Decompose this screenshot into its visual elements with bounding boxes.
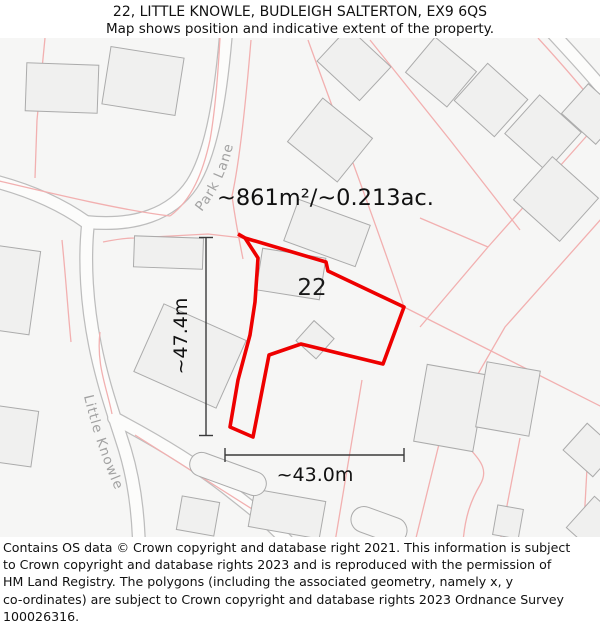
building xyxy=(133,236,203,269)
property-map: ~861m²/~0.213ac. 22 ~47.4m ~43.0m Park L… xyxy=(0,0,600,625)
building xyxy=(493,505,524,539)
footer-line: Contains OS data © Crown copyright and d… xyxy=(3,539,597,556)
map-description-subtitle: Map shows position and indicative extent… xyxy=(0,21,600,38)
property-address-title: 22, LITTLE KNOWLE, BUDLEIGH SALTERTON, E… xyxy=(0,0,600,21)
area-label: ~861m²/~0.213ac. xyxy=(217,185,434,211)
footer-line: HM Land Registry. The polygons (includin… xyxy=(3,573,597,590)
width-dimension-label: ~43.0m xyxy=(277,464,354,486)
building xyxy=(414,364,487,451)
building xyxy=(176,496,219,536)
footer-line: 100026316. xyxy=(3,608,597,625)
property-number-label: 22 xyxy=(297,275,326,301)
building xyxy=(102,47,184,116)
height-dimension-label: ~47.4m xyxy=(170,298,192,375)
footer-line: to Crown copyright and database rights 2… xyxy=(3,556,597,573)
footer-line: co-ordinates) are subject to Crown copyr… xyxy=(3,591,597,608)
building xyxy=(25,63,99,113)
copyright-footer: Contains OS data © Crown copyright and d… xyxy=(0,539,600,625)
report-header: 22, LITTLE KNOWLE, BUDLEIGH SALTERTON, E… xyxy=(0,0,600,38)
building xyxy=(476,362,541,436)
